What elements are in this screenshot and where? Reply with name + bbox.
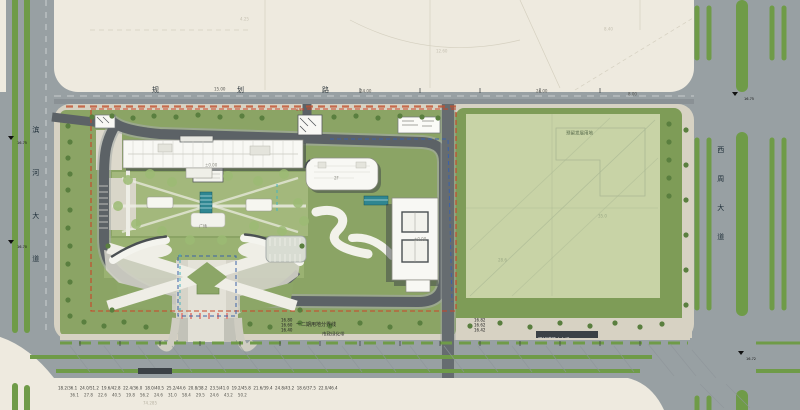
field-num-1: 35.0	[598, 214, 607, 219]
paper-faint-3: 8.40	[604, 27, 613, 32]
top-dim-2: 24.00	[360, 89, 371, 94]
paper-faint-2: 12.60	[436, 49, 447, 54]
right-road-name: 西周大道	[716, 146, 725, 262]
top-dim-1: 15.00	[214, 87, 225, 92]
building-mark-3: 2F	[334, 176, 339, 181]
top-dim-3: 24.00	[536, 89, 547, 94]
building-mark-2: ±0.00	[414, 237, 426, 242]
marker-left-a: 16.75	[17, 141, 27, 145]
field-num-2: 28.6	[498, 258, 507, 263]
red-dim: 6.25	[296, 108, 304, 112]
paper-faint-1: 4.25	[240, 17, 249, 22]
building-mark-1: ±0.00	[205, 163, 217, 168]
marker-left-b: 16.70	[17, 245, 27, 249]
marker-right-b: 16.72	[746, 357, 756, 361]
bottom-faint-num: 74.285	[143, 401, 157, 406]
spot-levels-right: 16.82 16.62 16.42	[474, 318, 485, 333]
road-chip-right: 现状道路中心线	[536, 331, 598, 338]
field-label: 预留发展用地	[566, 131, 593, 137]
road-chip-left: 道路中心线标高	[138, 368, 172, 374]
verge-label: 市政绿化带	[322, 332, 345, 338]
plaza-label: 广场	[199, 224, 207, 229]
top-dim-4: 8.00	[628, 92, 637, 97]
site-plan-canvas: 滨河大道 西周大道 规划路 一二期用地分界线 市政绿化带 预留发展用地 广场 道…	[0, 0, 800, 410]
parking-lot	[266, 236, 306, 262]
spot-levels-left: 16.80 16.60 16.40	[281, 318, 292, 333]
marker-right-a: 16.75	[744, 97, 754, 101]
site-plan-drawing	[0, 0, 800, 410]
